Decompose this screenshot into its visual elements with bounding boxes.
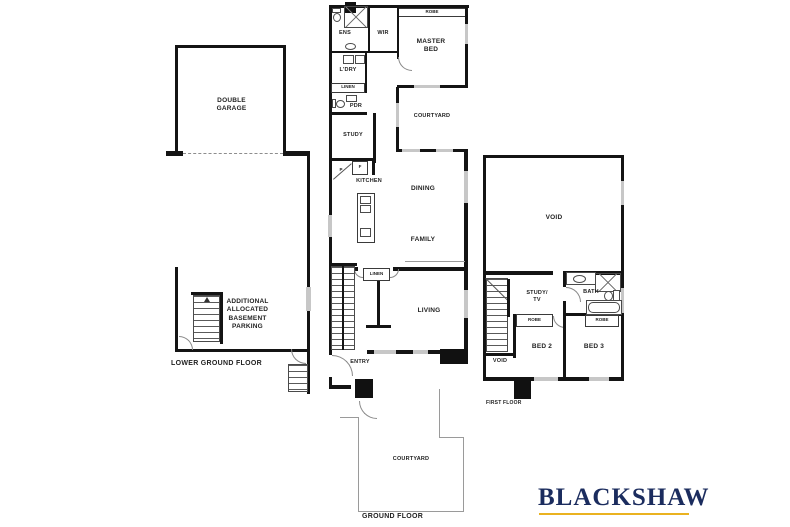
room-label-bed3: BED 3 <box>574 343 614 351</box>
basin-icon <box>573 275 586 283</box>
robe-label: ROBE <box>585 318 619 323</box>
wall <box>366 325 391 328</box>
wall <box>372 158 375 175</box>
wall <box>329 112 367 115</box>
garage-door-line <box>183 153 283 154</box>
fridge-label: F <box>352 165 368 170</box>
wall <box>175 45 286 48</box>
room-label-wir: WIR <box>372 30 394 37</box>
door-arc <box>390 269 399 278</box>
window <box>413 350 428 354</box>
room-label-courtyard-upper: COURTYARD <box>404 113 460 120</box>
shower-icon <box>344 6 368 28</box>
exterior-stairs-icon <box>288 364 308 392</box>
wall <box>175 45 178 155</box>
room-label-living: LIVING <box>404 307 454 315</box>
room-label-master-bed: MASTER BED <box>408 38 454 55</box>
wall <box>397 5 399 59</box>
room-label-courtyard-lower: COURTYARD <box>385 456 437 463</box>
wall <box>483 155 624 158</box>
window <box>621 181 624 205</box>
wall <box>283 151 310 156</box>
wall <box>307 151 310 352</box>
toilet-icon <box>333 13 341 22</box>
room-label-kitchen: KITCHEN <box>348 178 390 185</box>
porch-block <box>355 379 373 398</box>
window <box>464 171 468 203</box>
balcony-block <box>514 380 531 399</box>
wall <box>329 385 351 389</box>
wall <box>373 113 376 163</box>
basin-icon <box>346 95 357 102</box>
room-label-double-garage: DOUBLE GARAGE <box>189 97 274 114</box>
pantry-label: P <box>335 168 347 173</box>
room-label-ldry: L'DRY <box>334 67 362 74</box>
room-label-study: STUDY <box>338 132 368 139</box>
room-label-void-small: VOID <box>486 358 514 365</box>
brand-name: BLACKSHAW <box>538 484 710 512</box>
room-label-bed2: BED 2 <box>522 343 562 351</box>
room-label-dining: DINING <box>398 185 448 193</box>
wall <box>513 314 516 358</box>
brand-underline <box>539 513 689 515</box>
sink-icon <box>360 228 371 237</box>
window <box>306 287 311 311</box>
wall <box>331 158 353 161</box>
wall-block <box>440 349 468 364</box>
wall <box>175 267 178 352</box>
window <box>396 103 399 127</box>
linen-label: LINEN <box>331 85 365 90</box>
window <box>465 24 468 44</box>
window <box>589 377 609 381</box>
wall <box>368 8 370 53</box>
door-arc <box>398 57 412 71</box>
wall <box>283 45 286 155</box>
window <box>534 377 558 381</box>
washer-icon <box>355 55 365 64</box>
room-label-family: FAMILY <box>398 236 448 244</box>
window <box>374 350 396 354</box>
window <box>402 149 420 152</box>
linen-label: LINEN <box>363 272 390 277</box>
door-arc <box>354 269 363 278</box>
room-label-study-tv: STUDY/ TV <box>518 290 556 304</box>
window <box>436 149 453 152</box>
wall <box>175 349 310 352</box>
courtyard-boundary <box>358 417 359 512</box>
window <box>414 85 440 88</box>
wall <box>331 51 397 53</box>
robe-label: ROBE <box>415 10 449 15</box>
basin-icon <box>345 43 356 50</box>
cooktop-icon <box>360 205 371 213</box>
courtyard-boundary <box>463 437 464 512</box>
room-label-bath: BATH <box>578 289 604 296</box>
floor-label-ground: GROUND FLOOR <box>362 512 462 521</box>
bulkhead-line <box>405 261 465 262</box>
door-arc <box>359 401 377 419</box>
wall <box>404 267 468 271</box>
wall <box>484 353 514 356</box>
wall <box>365 53 367 93</box>
courtyard-boundary <box>439 437 464 438</box>
robe-label: ROBE <box>516 318 553 323</box>
courtyard-boundary <box>340 417 358 418</box>
wall <box>465 5 468 88</box>
wall <box>166 151 183 156</box>
bathtub-icon <box>588 302 620 313</box>
room-label-basement-parking: ADDITIONAL ALLOCATED BASEMENT PARKING <box>205 298 290 332</box>
door-arc <box>179 336 193 350</box>
cooktop-icon <box>360 196 371 204</box>
blackshaw-logo: BLACKSHAW <box>538 484 698 520</box>
laundry-tub-icon <box>343 55 354 64</box>
room-label-void-main: VOID <box>534 214 574 222</box>
wall <box>483 271 553 275</box>
window <box>328 215 332 237</box>
wall <box>507 279 510 317</box>
room-label-pdr: PDR <box>344 103 368 110</box>
wall <box>377 281 380 327</box>
stair-divider <box>342 266 344 350</box>
window <box>464 290 468 318</box>
room-label-ens: ENS <box>334 30 356 37</box>
courtyard-boundary <box>439 389 440 437</box>
floor-label-first: FIRST FLOOR <box>486 400 556 407</box>
floor-label-lower-ground: LOWER GROUND FLOOR <box>171 359 311 368</box>
floor-plan-canvas: DOUBLE GARAGE ADDITIONAL ALLOCATED BASEM… <box>0 0 790 527</box>
